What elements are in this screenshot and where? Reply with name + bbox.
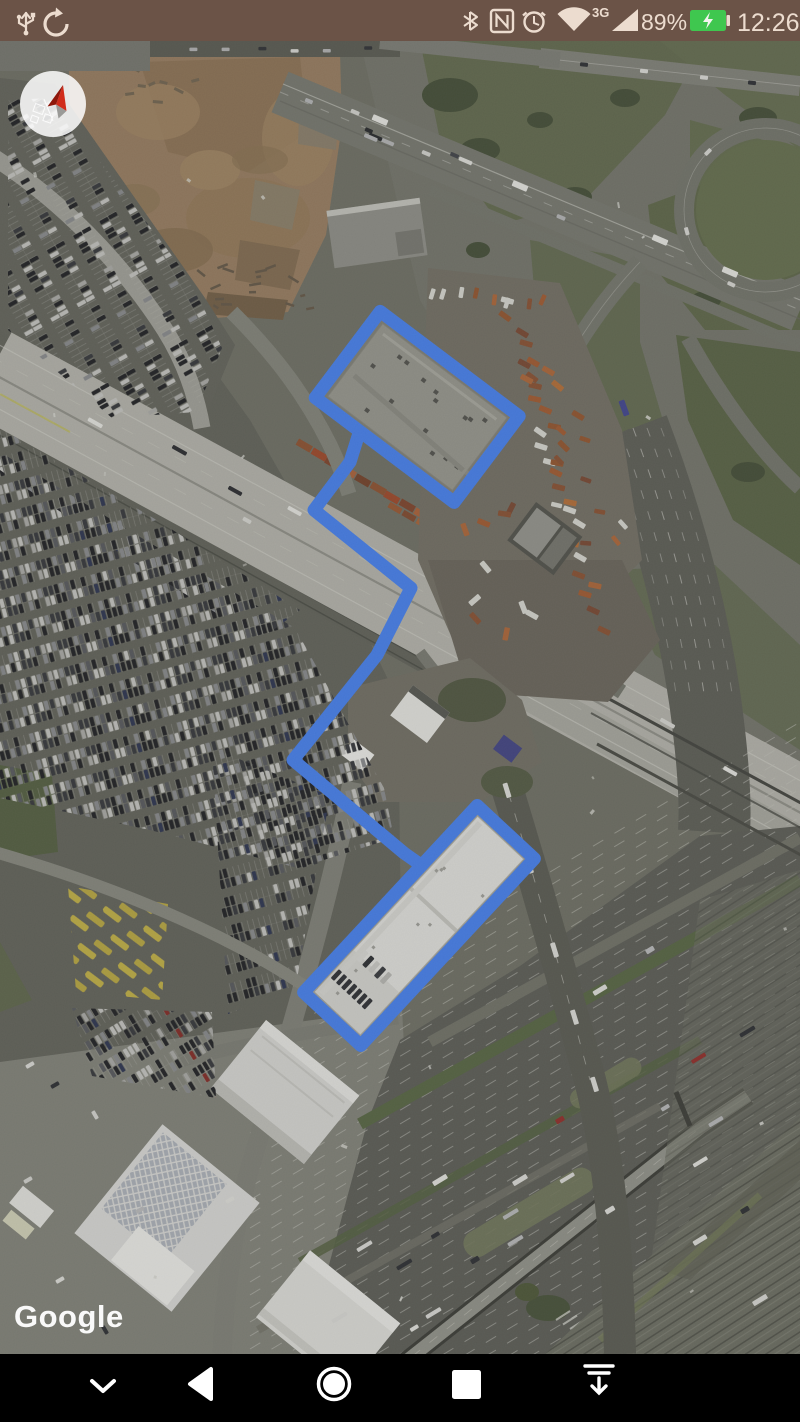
svg-text:89%: 89% [641,9,687,35]
svg-text:3G: 3G [592,5,609,20]
svg-text:12:26: 12:26 [737,9,800,37]
svg-text:Google: Google [14,1299,124,1334]
